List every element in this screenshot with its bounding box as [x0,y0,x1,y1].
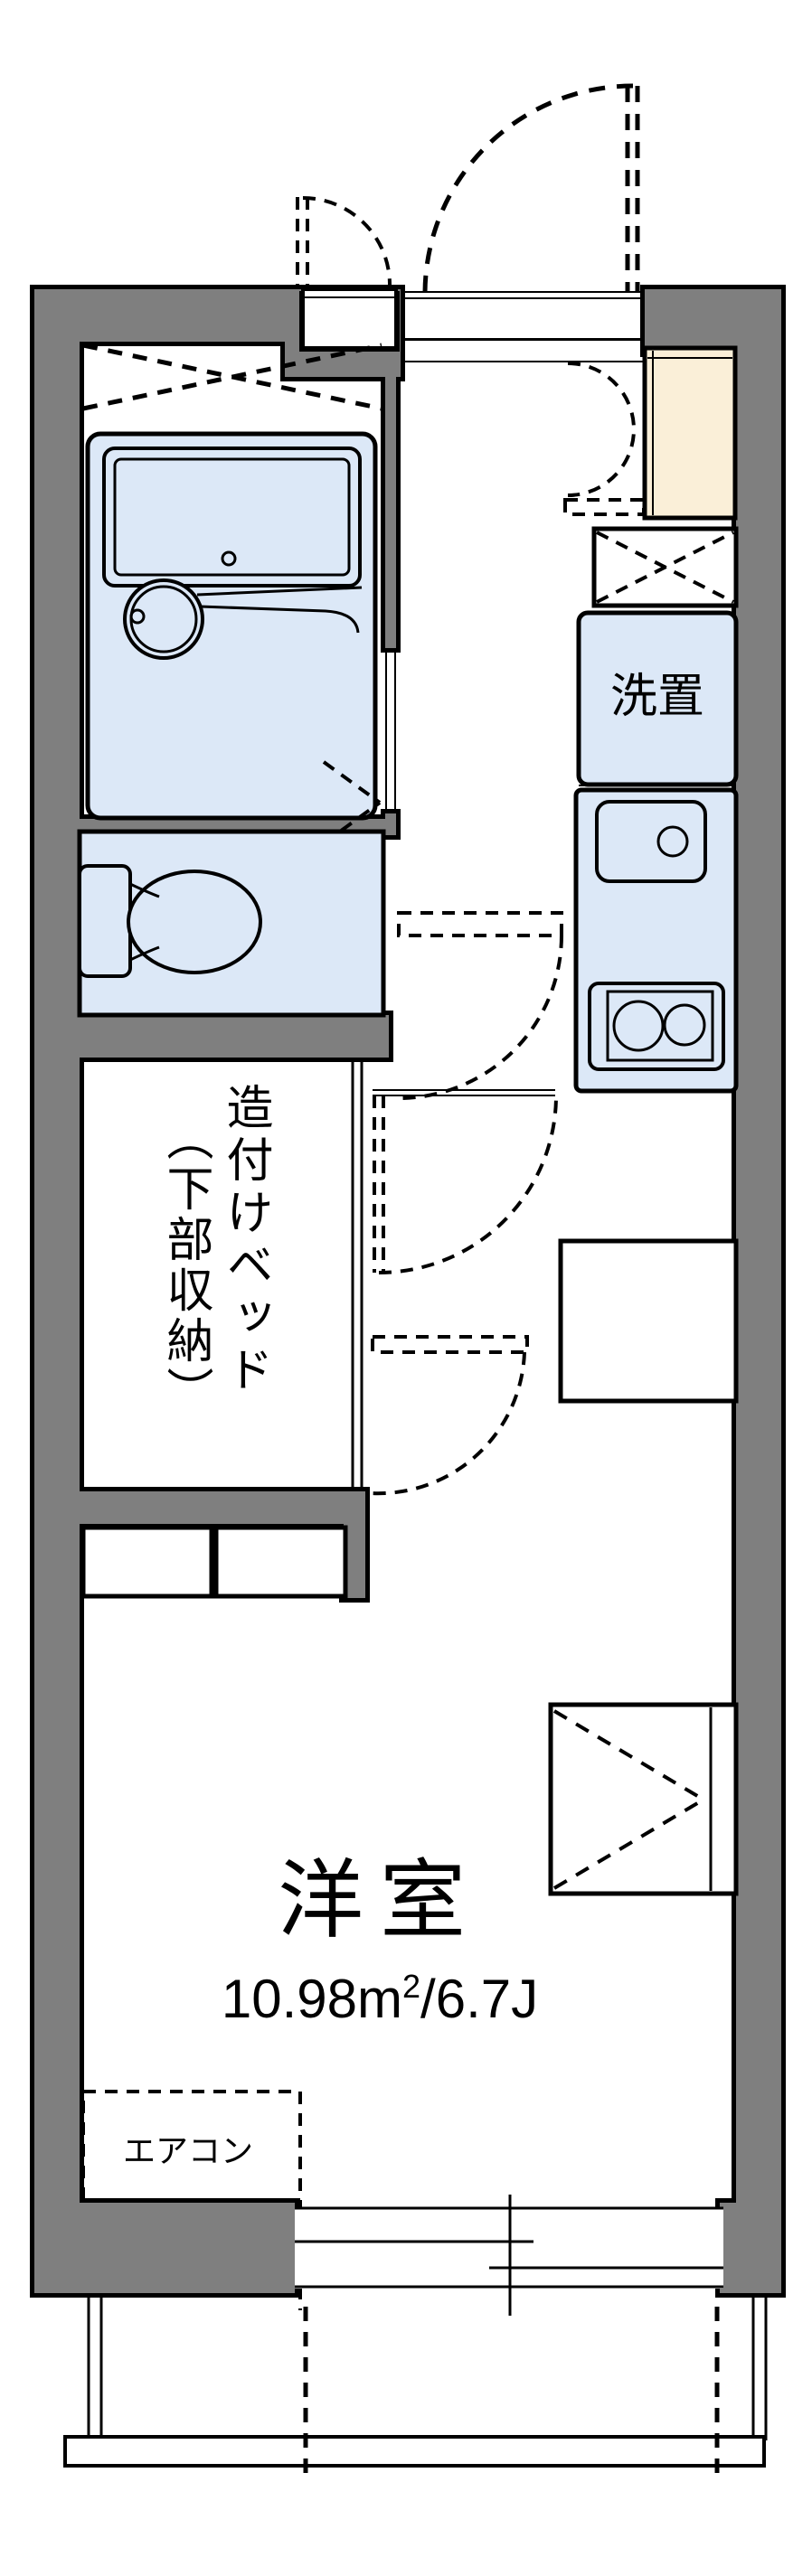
bed-label-main: 造付けベッド [212,1083,279,1397]
main-room-area: 10.98m2/6.7J [222,1968,538,2029]
wall-right [736,289,781,2293]
floor-plan: 洗置 [0,0,812,2576]
meter-box-door [297,197,390,285]
entrance-door [425,86,637,294]
toilet-tank [80,866,130,976]
hall-door-upper [399,913,562,1098]
entry-closet [565,363,644,514]
bed-label-sub: （下部収納） [152,1114,220,1417]
wall-partition-block [385,813,396,835]
floor-plan-drawing: 洗置 [0,0,812,2576]
wall-toilet-bed [34,1015,389,1058]
kitchen: 洗置 [561,529,736,1401]
entrance-opening [401,291,647,362]
kitchen-sink [597,802,705,881]
refrigerator-space [561,1241,736,1401]
wall-left [34,289,80,2293]
wall-bottom-left [34,2203,295,2293]
bed-room-door [370,1337,527,1493]
aircon-label: エアコン [123,2132,253,2169]
hall-door-kitchen [373,1090,556,1273]
wall-top-bath [34,289,285,342]
toilet-bowl [128,871,260,973]
toilet-room [80,832,383,1015]
window [295,2195,723,2316]
bed-room-partition [353,1058,362,1491]
wall-bed-room [80,1491,365,1524]
main-room-label: 洋室 [278,1853,482,1949]
washer-label: 洗置 [610,671,704,723]
bed-steps [83,1528,345,1596]
bathroom [83,345,395,843]
balcony [65,2293,766,2478]
basin [125,580,203,658]
main-room-closet [551,1705,736,1894]
meter-box [299,289,400,352]
balcony-railing [65,2437,764,2466]
faucet-icon [658,827,687,856]
wall-partition-bath [385,377,396,648]
wall-bottom-right [720,2203,781,2293]
genkan-step [645,348,735,518]
